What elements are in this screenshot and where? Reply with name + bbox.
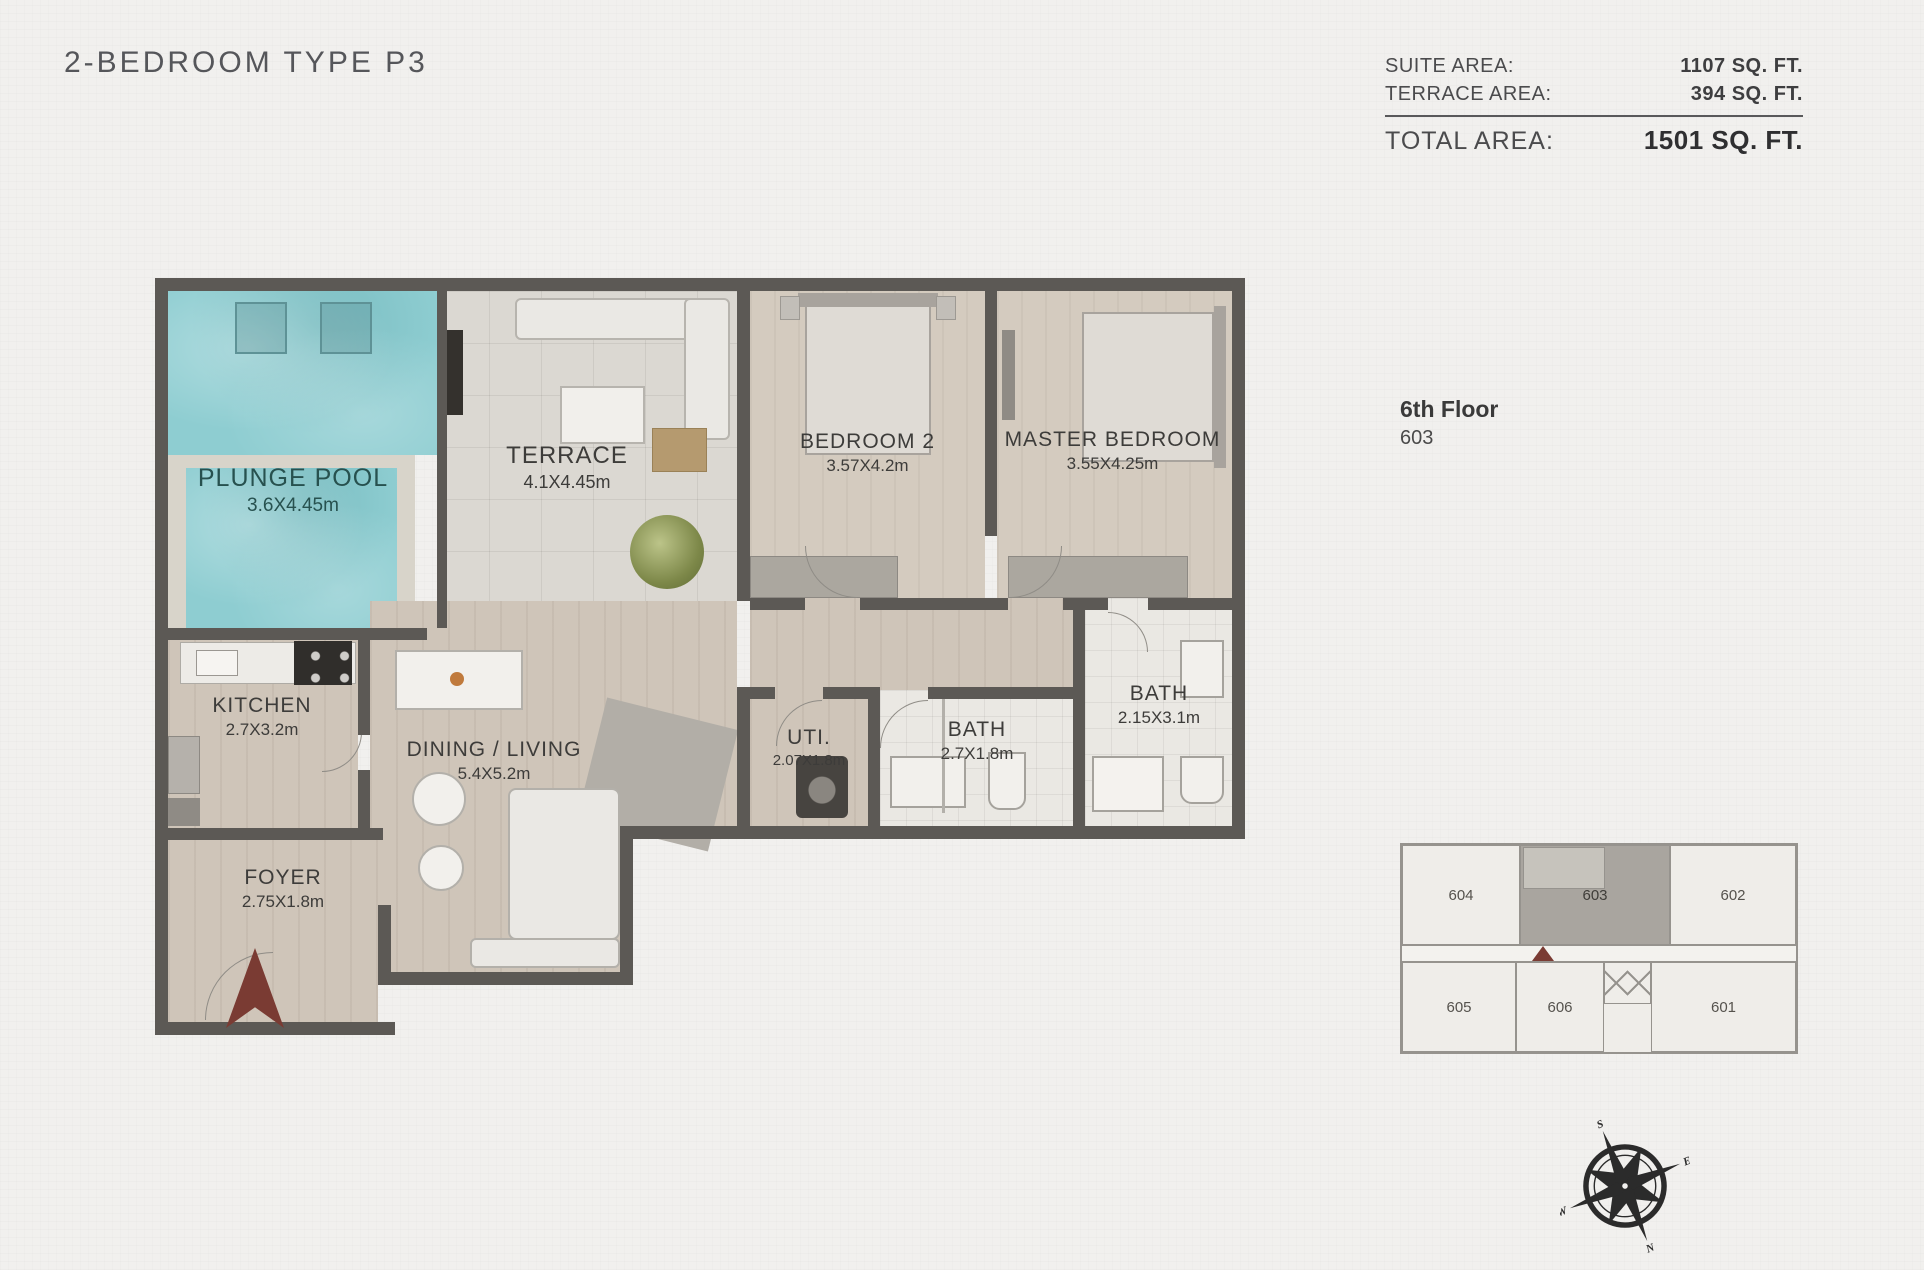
wall xyxy=(155,278,1245,291)
terrace-plant xyxy=(630,515,704,589)
terrace-sofa xyxy=(515,298,700,340)
pool-seat xyxy=(320,302,372,354)
kitchen-sink xyxy=(196,650,238,676)
keyplan-corridor xyxy=(1402,945,1796,962)
label-plunge-pool: PLUNGE POOL3.6X4.45m xyxy=(178,464,408,517)
compass-rose-icon: S N E W xyxy=(1560,1112,1690,1260)
wall xyxy=(750,598,805,610)
wall xyxy=(928,687,1073,699)
wall xyxy=(1073,598,1085,826)
pool-seat xyxy=(235,302,287,354)
compass-east-label: E xyxy=(1681,1155,1690,1169)
wall xyxy=(860,598,1008,610)
kitchen-cabinet xyxy=(168,798,200,826)
nightstand xyxy=(936,296,956,320)
wall xyxy=(155,278,168,1035)
keyplan-unit-602: 602 xyxy=(1670,845,1796,945)
wall xyxy=(437,291,447,628)
compass-south-label: S xyxy=(1595,1118,1605,1131)
keyplan-unit-603-inset xyxy=(1523,847,1605,889)
wall xyxy=(1063,598,1108,610)
bath2-shower xyxy=(1092,756,1164,812)
label-bath-2: BATH2.15X3.1m xyxy=(1088,682,1230,728)
keyplan-elevator-icon xyxy=(1604,962,1651,1004)
room-pool-upper xyxy=(168,291,437,455)
compass-north-label: N xyxy=(1643,1241,1657,1256)
wall xyxy=(378,972,633,985)
label-kitchen: KITCHEN2.7X3.2m xyxy=(172,694,352,740)
wall xyxy=(620,839,633,985)
master-dresser xyxy=(1002,330,1015,420)
room-corridor xyxy=(750,598,1073,690)
wall xyxy=(155,1022,395,1035)
compass-west-label: W xyxy=(1560,1204,1570,1219)
wall xyxy=(155,628,427,640)
keyplan-unit-606: 606 xyxy=(1516,962,1604,1052)
label-foyer: FOYER2.75X1.8m xyxy=(188,866,378,912)
key-plan: 604 603 602 605 606 601 xyxy=(1400,843,1798,1054)
wall xyxy=(358,640,370,735)
floor-plan: PLUNGE POOL3.6X4.45m TERRACE4.1X4.45m BE… xyxy=(0,0,1924,1270)
nightstand xyxy=(780,296,800,320)
keyplan-unit-605: 605 xyxy=(1402,962,1516,1052)
label-dining-living: DINING / LIVING5.4X5.2m xyxy=(334,738,654,784)
label-utility: UTI.2.07X1.8m xyxy=(746,726,872,769)
label-terrace: TERRACE4.1X4.45m xyxy=(452,442,682,493)
floorplan-page: 2-BEDROOM TYPE P3 SUITE AREA: 1107 SQ. F… xyxy=(0,0,1924,1270)
wall xyxy=(378,905,391,985)
keyplan-unit-601: 601 xyxy=(1651,962,1796,1052)
label-master-bedroom: MASTER BEDROOM3.55X4.25m xyxy=(985,428,1240,474)
wall xyxy=(620,826,1245,839)
wall xyxy=(1148,598,1232,610)
wall xyxy=(168,828,383,840)
living-sofa xyxy=(508,788,620,940)
keyplan-location-arrow-icon xyxy=(1532,946,1554,961)
wall xyxy=(750,687,775,699)
wall xyxy=(985,291,997,536)
terrace-sofa-side xyxy=(684,298,730,440)
kitchen-stove xyxy=(294,641,352,685)
wall xyxy=(737,278,750,601)
kitchen-fridge xyxy=(168,736,200,794)
keyplan-unit-604: 604 xyxy=(1402,845,1520,945)
living-sofa-chaise xyxy=(470,938,620,968)
label-bedroom-2: BEDROOM 23.57X4.2m xyxy=(755,430,980,476)
dining-centerpiece xyxy=(450,672,464,686)
bath2-toilet xyxy=(1180,756,1224,804)
round-side-table xyxy=(418,845,464,891)
label-bath-1: BATH2.7X1.8m xyxy=(882,718,1072,764)
terrace-coffee-table xyxy=(560,386,645,444)
wall xyxy=(1232,278,1245,839)
